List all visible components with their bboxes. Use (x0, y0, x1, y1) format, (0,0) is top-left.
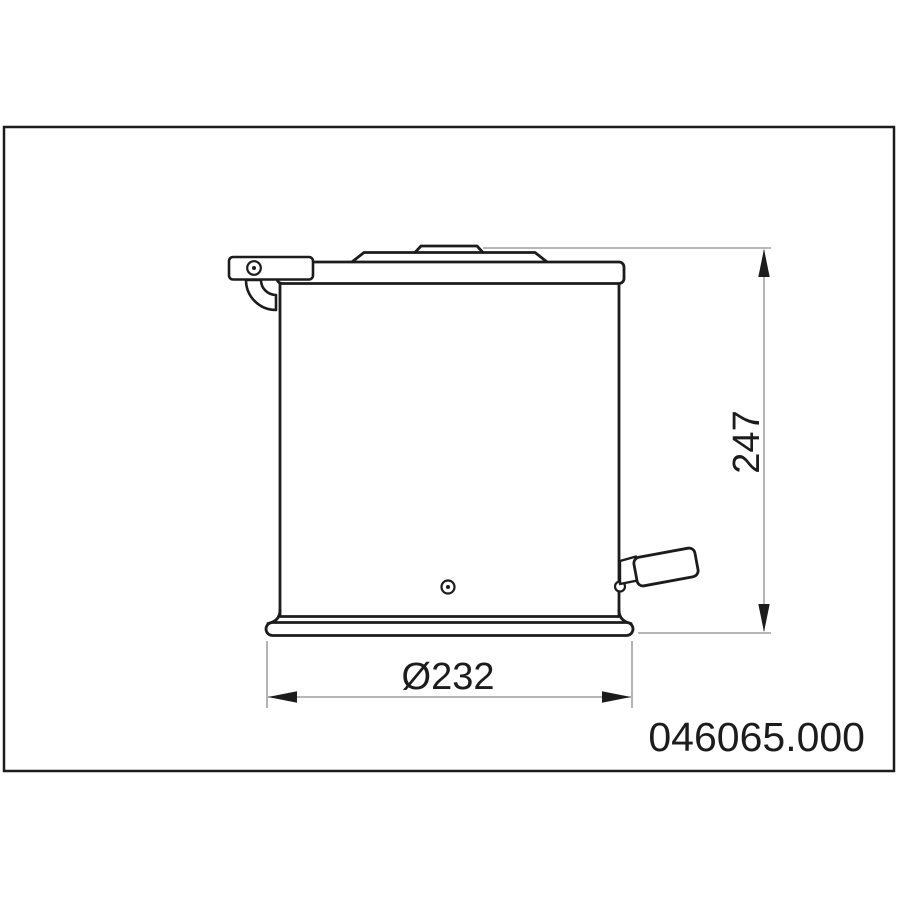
lid-rim (277, 262, 624, 284)
height-dimension-label: 247 (726, 410, 768, 473)
drawing-page: select-interiorworld.com (0, 0, 900, 900)
diameter-dimension-label: Ø232 (402, 656, 495, 698)
bin-body (280, 270, 619, 617)
hinge-pivot-center-dot (252, 266, 256, 270)
hinge-bracket (229, 257, 313, 280)
body-screw-center-dot (446, 585, 450, 589)
product-code: 046065.000 (648, 714, 865, 760)
technical-drawing-canvas: select-interiorworld.com (0, 0, 900, 900)
base-flange (266, 623, 633, 636)
